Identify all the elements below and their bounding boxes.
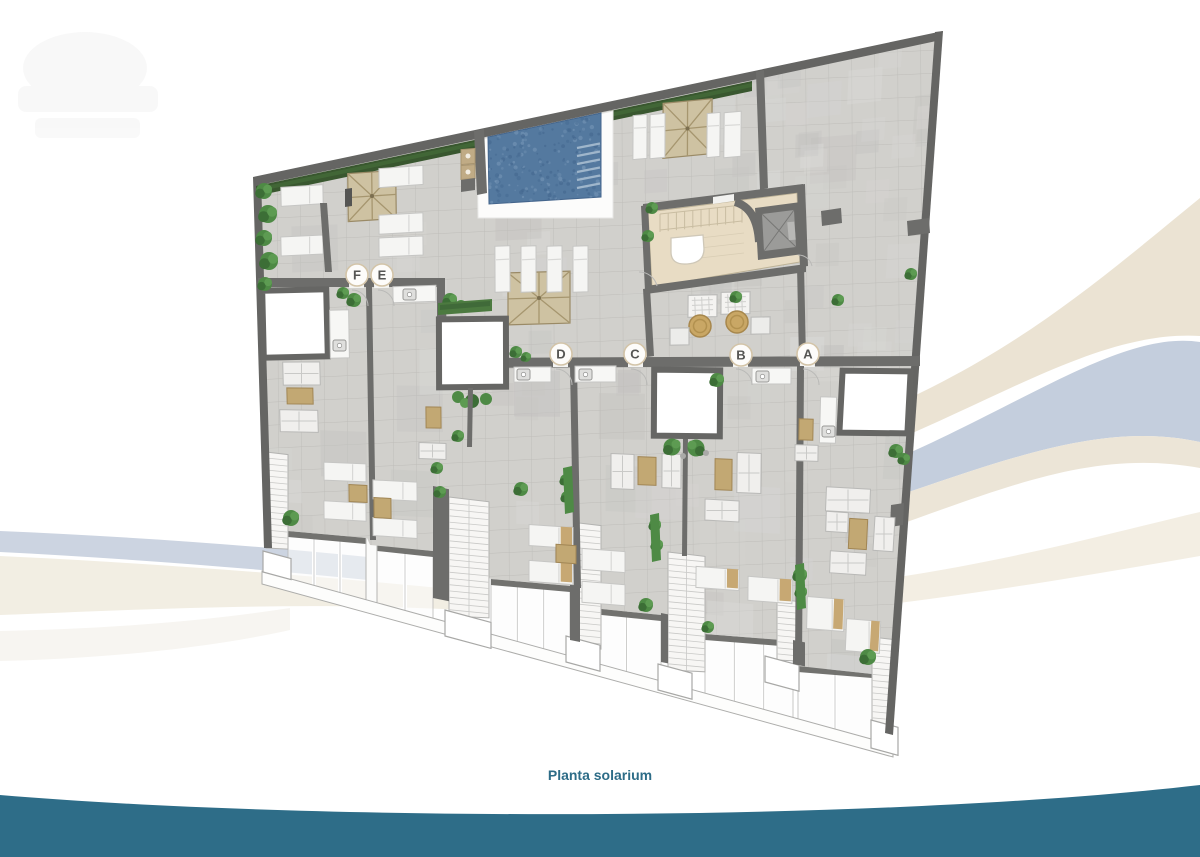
svg-text:Planta solarium: Planta solarium <box>548 767 652 783</box>
svg-text:E: E <box>378 268 387 283</box>
svg-text:D: D <box>556 347 565 362</box>
svg-text:B: B <box>736 348 745 363</box>
svg-text:F: F <box>353 268 361 283</box>
svg-text:C: C <box>630 347 640 362</box>
svg-text:A: A <box>803 347 813 362</box>
